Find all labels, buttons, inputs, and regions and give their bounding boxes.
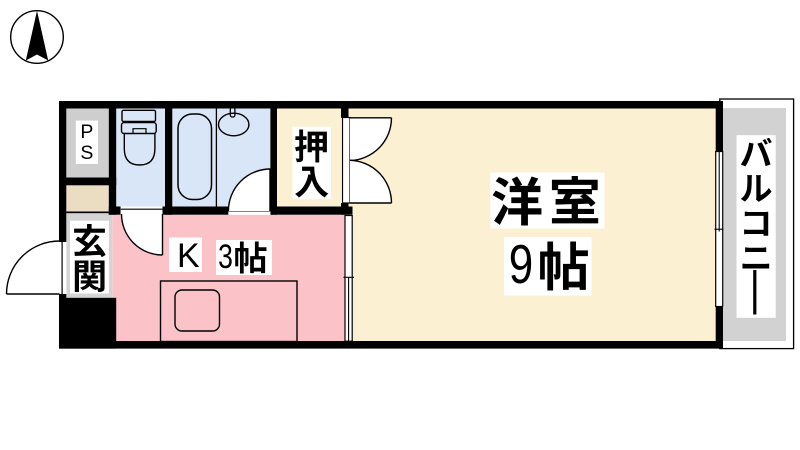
svg-text:P: P — [80, 121, 93, 143]
svg-text:K: K — [177, 237, 200, 275]
svg-text:9: 9 — [509, 233, 533, 295]
svg-text:3: 3 — [218, 238, 233, 276]
svg-text:S: S — [80, 142, 93, 164]
